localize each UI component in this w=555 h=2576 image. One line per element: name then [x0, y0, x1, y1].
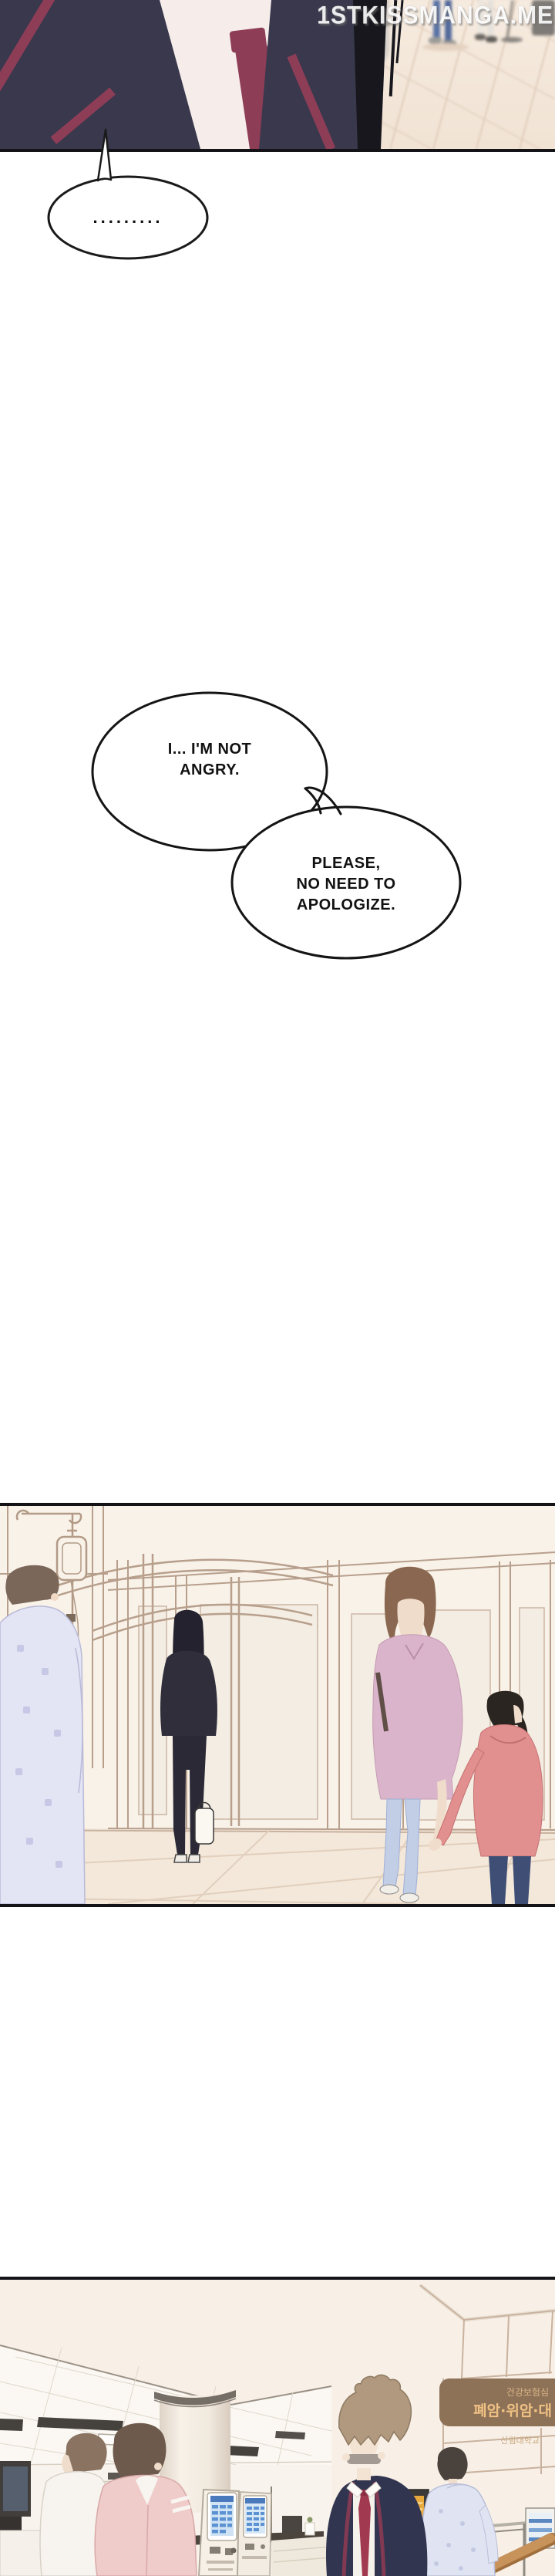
cleaning-stand-base	[501, 37, 523, 42]
sign-line1: 건강보험심	[506, 2387, 549, 2398]
wall-text: 산림대학교	[500, 2436, 540, 2446]
distant-person-shoe	[486, 36, 497, 42]
distant-person-shoe	[475, 34, 486, 40]
bubble-tail	[98, 130, 111, 181]
floor-shadow	[422, 43, 469, 51]
white-tote-bag	[195, 1808, 214, 1844]
speech-bubble-silence	[31, 123, 231, 270]
site-watermark: 1STKISSMANGA.ME	[317, 2, 553, 31]
bubble-not-angry-text: I... I'M NOT ANGRY.	[123, 739, 296, 781]
panel-lobby: 건강보험심 폐암·위암·대 산림대학교	[0, 2277, 555, 2576]
speech-bubbles-dialog	[77, 679, 478, 972]
bubble-line: I... I'M NOT	[123, 739, 296, 760]
sign-line2: 폐암·위암·대	[473, 2402, 552, 2419]
bubble-line: PLEASE,	[254, 853, 439, 874]
kiosk-back	[236, 2492, 271, 2576]
lower-wall	[271, 2536, 331, 2576]
kiosk-front	[199, 2490, 239, 2576]
bubble-line: APOLOGIZE.	[254, 895, 439, 916]
ceiling-vent	[0, 2419, 23, 2431]
shadowed-eyes	[347, 2454, 381, 2464]
bubble-line: ANGRY.	[123, 760, 296, 781]
bubble-line: NO NEED TO	[254, 874, 439, 895]
manhwa-page: 1STKISSMANGA.ME ......... I... I'M NOT A…	[0, 0, 555, 2576]
panel-entrance	[0, 1503, 555, 1907]
bubble-silence-text: .........	[74, 210, 182, 225]
bubble-apologize-text: PLEASE, NO NEED TO APOLOGIZE.	[254, 853, 439, 916]
